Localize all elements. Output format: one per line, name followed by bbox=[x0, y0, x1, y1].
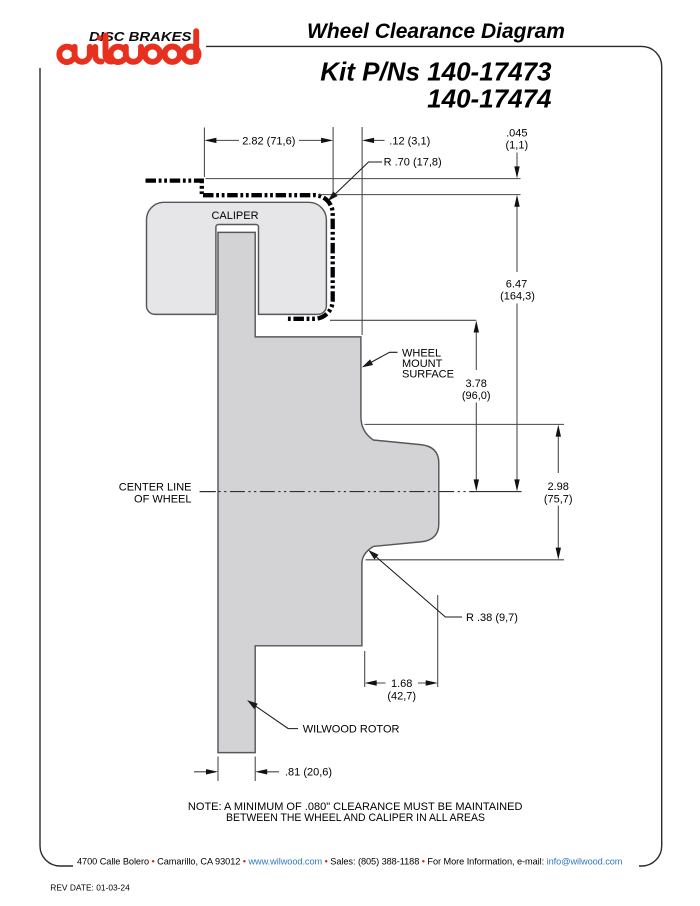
svg-text:(75,7): (75,7) bbox=[544, 493, 573, 505]
svg-text:(42,7): (42,7) bbox=[387, 690, 416, 702]
svg-text:6.47: 6.47 bbox=[506, 278, 527, 290]
svg-text:WILWOOD ROTOR: WILWOOD ROTOR bbox=[303, 724, 400, 736]
svg-text:3.78: 3.78 bbox=[465, 378, 486, 390]
svg-text:CENTER LINE: CENTER LINE bbox=[119, 482, 192, 494]
svg-text:(1,1): (1,1) bbox=[505, 140, 528, 152]
svg-text:SURFACE: SURFACE bbox=[402, 369, 454, 381]
svg-text:(164,3): (164,3) bbox=[500, 290, 535, 302]
svg-text:.12 (3,1): .12 (3,1) bbox=[389, 135, 430, 147]
svg-text:2.98: 2.98 bbox=[547, 481, 568, 493]
svg-text:1.68: 1.68 bbox=[391, 678, 412, 690]
svg-text:OF WHEEL: OF WHEEL bbox=[134, 493, 191, 505]
svg-text:Kit P/Ns 140-17473: Kit P/Ns 140-17473 bbox=[320, 57, 552, 87]
svg-text:2.82 (71,6): 2.82 (71,6) bbox=[242, 136, 295, 148]
svg-text:R .70 (17,8): R .70 (17,8) bbox=[384, 157, 442, 169]
svg-text:.81 (20,6): .81 (20,6) bbox=[285, 767, 332, 779]
svg-text:140-17474: 140-17474 bbox=[427, 84, 552, 114]
svg-text:.045: .045 bbox=[506, 127, 527, 139]
svg-text:CALIPER: CALIPER bbox=[211, 210, 258, 222]
svg-text:Wheel Clearance Diagram: Wheel Clearance Diagram bbox=[307, 20, 565, 43]
svg-text:4700 Calle Bolero • Camarillo,: 4700 Calle Bolero • Camarillo, CA 93012 … bbox=[77, 856, 623, 866]
svg-text:BETWEEN THE WHEEL AND CALIPER: BETWEEN THE WHEEL AND CALIPER IN ALL ARE… bbox=[226, 812, 485, 824]
svg-text:R .38 (9,7): R .38 (9,7) bbox=[466, 612, 518, 624]
svg-text:(96,0): (96,0) bbox=[462, 390, 491, 402]
svg-text:REV DATE: 01-03-24: REV DATE: 01-03-24 bbox=[50, 883, 130, 893]
